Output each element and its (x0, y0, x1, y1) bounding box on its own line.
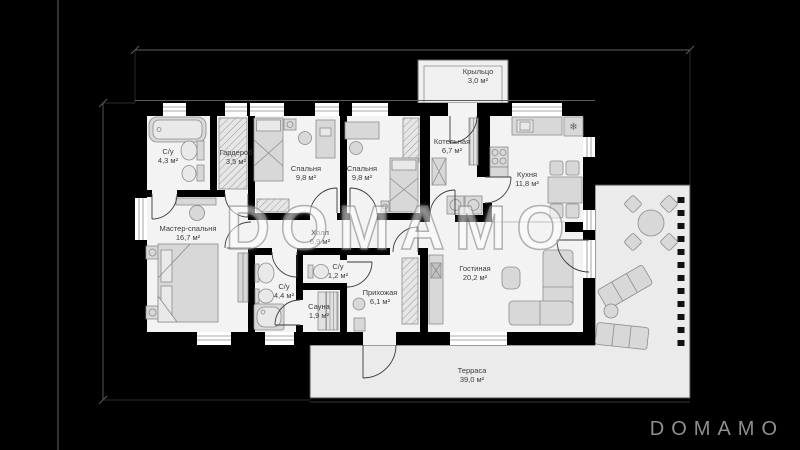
room-label-kitchen: Кухня 11,8 м² (515, 170, 539, 188)
room-label-entry-hall: Прихожая 6,1 м² (363, 288, 398, 306)
room-area: 1,9 м² (308, 311, 330, 320)
window (250, 103, 284, 116)
room-name: С/у (158, 147, 178, 156)
room-area: 4,3 м² (158, 156, 178, 165)
room-area: 39,0 м² (458, 375, 487, 384)
room-name: Спальня (347, 164, 377, 173)
window (315, 103, 339, 116)
brand-logo: DOMAMO (650, 418, 784, 441)
room-area: 11,8 м² (515, 179, 539, 188)
room-label-boiler: Котельная 6,7 м² (434, 137, 470, 155)
room-area: 3,5 м² (220, 157, 253, 166)
room-area: 9,8 м² (291, 173, 321, 182)
window (450, 332, 507, 345)
room-label-porch: Крыльцо 3,0 м² (463, 67, 494, 85)
room-name: Гостиная (459, 264, 490, 273)
room-name: Холл (310, 228, 330, 237)
room-label-bedroom-1: Спальня 9,8 м² (291, 164, 321, 182)
room-label-su-43: С/у 4,3 м² (158, 147, 178, 165)
room-label-wc: С/у 1,2 м² (328, 262, 348, 280)
room-name: Прихожая (363, 288, 398, 297)
room-label-sauna: Сауна 1,9 м² (308, 302, 330, 320)
room-area: 3,0 м² (463, 76, 494, 85)
room-name: С/у (274, 282, 294, 291)
room-area: 20,2 м² (459, 273, 490, 282)
room-name: Мастер-спальня (160, 224, 217, 233)
fridge-snowflake-icon: ❄ (569, 122, 577, 133)
window (512, 103, 562, 116)
window (352, 103, 388, 116)
window (583, 210, 595, 230)
room-name: Кухня (515, 170, 539, 179)
room-name: Сауна (308, 302, 330, 311)
window (225, 103, 247, 116)
room-name: С/у (328, 262, 348, 271)
room-name: Терраса (458, 366, 487, 375)
room-label-terrace: Терраса 39,0 м² (458, 366, 487, 384)
room-area: 9,8 м² (347, 173, 377, 182)
room-label-bedroom-2: Спальня 9,8 м² (347, 164, 377, 182)
room-label-living-room: Гостиная 20,2 м² (459, 264, 490, 282)
room-name: Котельная (434, 137, 470, 146)
window (265, 332, 294, 345)
window (135, 198, 147, 240)
room-name: Крыльцо (463, 67, 494, 76)
room-label-wardrobe: Гардероб 3,5 м² (220, 148, 253, 166)
window (197, 332, 231, 345)
floor-plan-drawing: ❄ (0, 0, 800, 450)
room-area: 6,7 м² (434, 146, 470, 155)
room-area: 16,7 м² (160, 233, 217, 242)
room-area: 6,9 м² (310, 237, 330, 246)
window (583, 137, 595, 157)
room-label-master-bedroom: Мастер-спальня 16,7 м² (160, 224, 217, 242)
room-name: Гардероб (220, 148, 253, 157)
room-area: 4,4 м² (274, 291, 294, 300)
room-area: 1,2 м² (328, 271, 348, 280)
wc-furniture (308, 265, 329, 279)
room-label-hall: Холл 6,9 м² (310, 228, 330, 246)
room-label-su-44: С/у 4,4 м² (274, 282, 294, 300)
room-name: Спальня (291, 164, 321, 173)
room-area: 6,1 м² (363, 297, 398, 306)
window (163, 103, 186, 116)
floor-plan-canvas: ❄ (0, 0, 800, 450)
